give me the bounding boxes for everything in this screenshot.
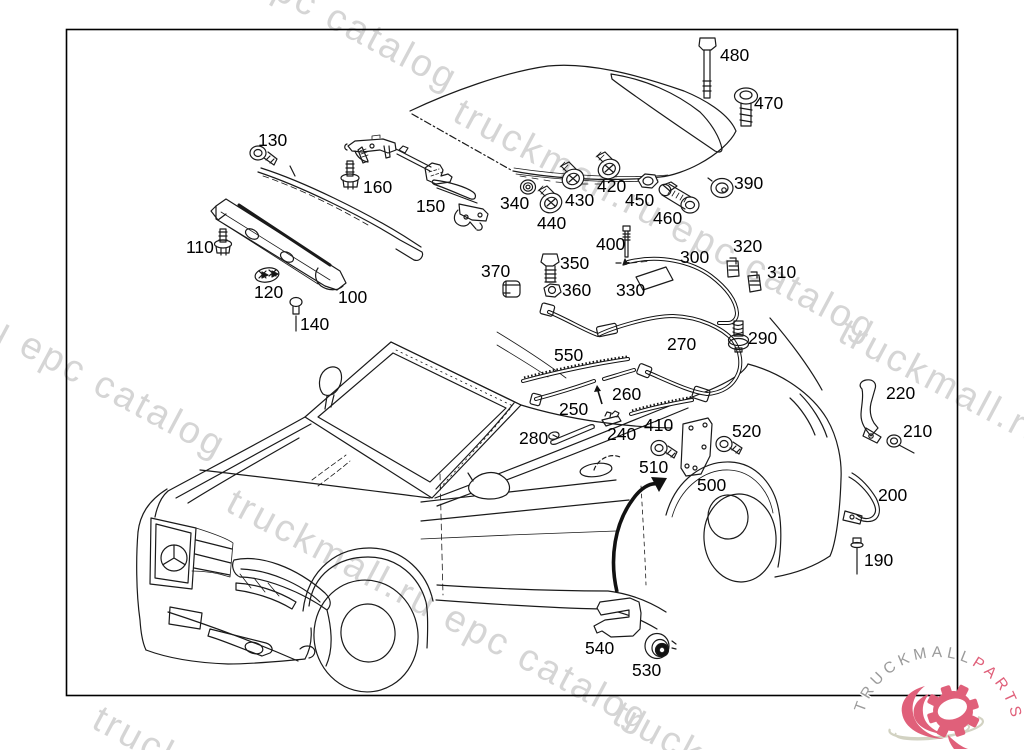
svg-text:410: 410 xyxy=(644,415,673,435)
svg-text:110: 110 xyxy=(186,237,214,257)
svg-text:440: 440 xyxy=(537,213,566,233)
svg-text:540: 540 xyxy=(585,638,614,658)
svg-text:320: 320 xyxy=(733,236,762,256)
svg-text:470: 470 xyxy=(754,93,783,113)
svg-text:300: 300 xyxy=(680,247,709,267)
svg-text:310: 310 xyxy=(767,262,796,282)
svg-text:190: 190 xyxy=(864,550,893,570)
svg-text:120: 120 xyxy=(254,282,283,302)
svg-text:550: 550 xyxy=(554,345,583,365)
svg-text:340: 340 xyxy=(500,193,529,213)
svg-text:450: 450 xyxy=(625,190,654,210)
svg-text:200: 200 xyxy=(878,485,907,505)
svg-text:250: 250 xyxy=(559,399,588,419)
svg-text:220: 220 xyxy=(886,383,915,403)
svg-text:210: 210 xyxy=(903,421,932,441)
svg-text:260: 260 xyxy=(612,384,641,404)
svg-text:400: 400 xyxy=(596,234,625,254)
svg-text:290: 290 xyxy=(748,328,777,348)
svg-text:510: 510 xyxy=(639,457,668,477)
svg-text:160: 160 xyxy=(363,177,392,197)
svg-text:530: 530 xyxy=(632,660,661,680)
svg-text:520: 520 xyxy=(732,421,761,441)
svg-text:460: 460 xyxy=(653,208,682,228)
svg-text:150: 150 xyxy=(416,196,445,216)
svg-text:140: 140 xyxy=(300,314,329,334)
svg-text:390: 390 xyxy=(734,173,763,193)
svg-text:130: 130 xyxy=(258,130,287,150)
svg-text:330: 330 xyxy=(616,280,645,300)
svg-text:280: 280 xyxy=(519,428,548,448)
svg-text:270: 270 xyxy=(667,334,696,354)
svg-text:500: 500 xyxy=(697,475,726,495)
svg-text:100: 100 xyxy=(338,287,367,307)
svg-text:420: 420 xyxy=(597,176,626,196)
svg-text:360: 360 xyxy=(562,280,591,300)
svg-text:350: 350 xyxy=(560,253,589,273)
svg-text:430: 430 xyxy=(565,190,594,210)
svg-text:240: 240 xyxy=(607,424,636,444)
svg-text:480: 480 xyxy=(720,45,749,65)
svg-text:370: 370 xyxy=(481,261,510,281)
